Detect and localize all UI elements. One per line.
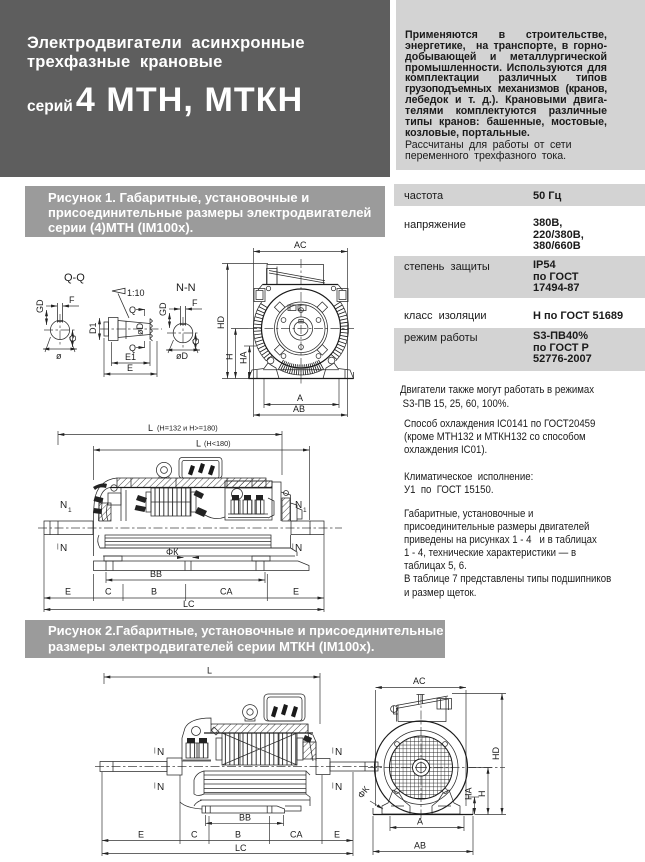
svg-text:HD: HD <box>216 316 226 329</box>
svg-text:F: F <box>192 298 198 308</box>
svg-text:L: L <box>196 439 201 449</box>
svg-text:E: E <box>293 587 299 597</box>
svg-text:L: L <box>148 423 153 433</box>
svg-text:ΦК: ΦК <box>166 547 179 557</box>
svg-text:N: N <box>60 543 67 554</box>
svg-text:F: F <box>69 295 75 305</box>
svg-text:(H=132 и H>=180): (H=132 и H>=180) <box>157 424 218 433</box>
svg-text:G: G <box>191 338 201 345</box>
svg-text:CA: CA <box>220 587 233 597</box>
svg-text:D1: D1 <box>88 322 98 334</box>
svg-text:HA: HA <box>239 351 249 364</box>
svg-text:HA: HA <box>464 787 474 800</box>
svg-text:GD: GD <box>35 299 45 313</box>
svg-text:C: C <box>191 830 198 840</box>
svg-text:L: L <box>207 666 212 676</box>
svg-text:(H<180): (H<180) <box>204 439 231 448</box>
svg-text:1: 1 <box>68 507 72 514</box>
svg-text:H: H <box>225 354 235 361</box>
svg-text:HD: HD <box>491 747 501 760</box>
svg-text:E1: E1 <box>125 352 136 362</box>
svg-text:|: | <box>332 747 334 754</box>
svg-text:N: N <box>157 782 164 793</box>
svg-text:|: | <box>332 782 334 789</box>
svg-text:N: N <box>335 747 342 758</box>
svg-text:AC: AC <box>294 240 307 250</box>
svg-text:ø: ø <box>56 351 62 361</box>
svg-text:N: N <box>157 747 164 758</box>
svg-text:AB: AB <box>293 404 305 414</box>
svg-text:N: N <box>60 500 67 511</box>
svg-text:B: B <box>235 830 241 840</box>
svg-text:|: | <box>57 543 59 550</box>
svg-text:A: A <box>297 393 303 403</box>
svg-text:H: H <box>477 791 487 798</box>
svg-text:|: | <box>154 747 156 754</box>
svg-text:øD: øD <box>135 323 145 335</box>
svg-text:BB: BB <box>150 569 162 579</box>
svg-text:1:10: 1:10 <box>127 288 145 298</box>
svg-text:A: A <box>417 817 423 827</box>
svg-text:LC: LC <box>235 843 247 853</box>
svg-text:E: E <box>127 363 133 373</box>
svg-text:|: | <box>154 782 156 789</box>
svg-text:ΦК: ΦК <box>356 784 372 801</box>
svg-text:E: E <box>334 830 340 840</box>
svg-text:CA: CA <box>290 830 303 840</box>
svg-text:C: C <box>105 587 112 597</box>
svg-text:Q-Q: Q-Q <box>64 272 85 284</box>
svg-text:|: | <box>292 543 294 550</box>
svg-text:AB: AB <box>414 841 426 851</box>
svg-text:BB: BB <box>239 813 251 823</box>
svg-text:N-N: N-N <box>176 282 196 294</box>
svg-text:N: N <box>335 782 342 793</box>
svg-text:B: B <box>151 587 157 597</box>
svg-text:E: E <box>65 587 71 597</box>
svg-text:E: E <box>138 830 144 840</box>
svg-text:N: N <box>295 543 302 554</box>
svg-text:LC: LC <box>183 599 195 609</box>
svg-text:Q: Q <box>129 305 136 315</box>
svg-text:GD: GD <box>158 302 168 316</box>
svg-text:1: 1 <box>303 507 307 514</box>
svg-text:øD: øD <box>176 351 188 361</box>
svg-text:N: N <box>295 500 302 511</box>
svg-text:AC: AC <box>413 676 426 686</box>
svg-text:G: G <box>68 335 78 342</box>
